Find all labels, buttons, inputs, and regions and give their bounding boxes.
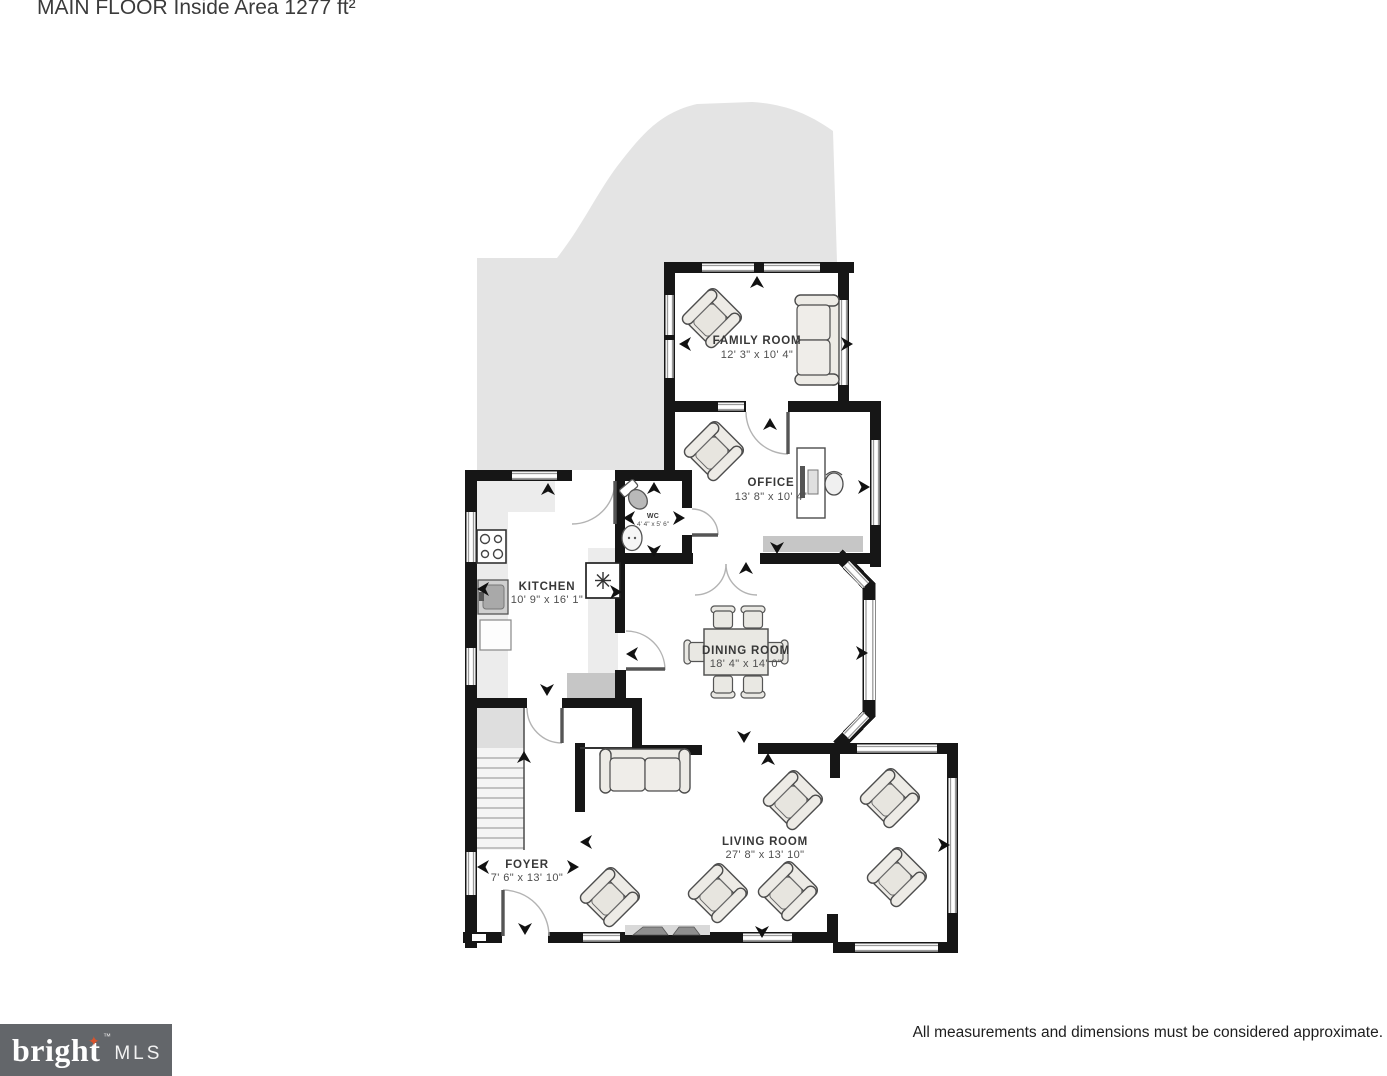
room-label-foyer: FOYER [505, 859, 549, 871]
floor-plan: FAMILY ROOM 12' 3" x 10' 4" OFFICE 13' 8… [0, 0, 1387, 1076]
camera-arrow-icon [647, 482, 661, 494]
deck-area [477, 102, 837, 470]
camera-arrow-icon [737, 731, 751, 743]
room-dim-foyer: 7' 6" x 13' 10" [491, 872, 563, 884]
living-room-armchair [756, 859, 820, 923]
office-chair [825, 473, 843, 495]
room-dim-dining-room: 18' 4" x 14' 0" [710, 658, 782, 670]
camera-arrow-icon [540, 684, 554, 696]
room-label-office: OFFICE [748, 477, 795, 489]
room-dim-wc: 4' 4" x 5' 6" [637, 521, 670, 528]
camera-arrow-icon [477, 860, 489, 874]
fireplace [625, 925, 710, 935]
camera-arrow-icon [750, 276, 764, 288]
kitchen-cabinet [480, 620, 511, 650]
room-label-wc: WC [647, 513, 659, 520]
room-dim-family-room: 12' 3" x 10' 4" [721, 349, 793, 361]
living-room-armchair [865, 845, 929, 909]
living-room-armchair [578, 865, 642, 929]
office-desk [797, 448, 843, 518]
camera-arrow-icon [761, 753, 775, 765]
camera-arrow-icon [626, 647, 638, 661]
living-room-armchair [686, 861, 750, 925]
disclaimer-text: All measurements and dimensions must be … [913, 1024, 1383, 1042]
room-label-dining-room: DINING ROOM [702, 645, 790, 657]
room-dim-living-room: 27' 8" x 13' 10" [726, 849, 805, 861]
room-label-kitchen: KITCHEN [519, 581, 576, 593]
kitchen-sink [478, 580, 508, 614]
wc-sink [622, 526, 642, 551]
living-room-armchair [761, 768, 825, 832]
living-room-sofa [600, 749, 690, 793]
room-label-family-room: FAMILY ROOM [713, 335, 802, 347]
camera-arrow-icon [567, 860, 579, 874]
living-room-armchair [858, 766, 922, 830]
room-dim-kitchen: 10' 9" x 16' 1" [511, 594, 583, 606]
room-label-living-room: LIVING ROOM [722, 836, 808, 848]
kitchen-stove [477, 530, 506, 563]
logo-trademark: ™ [103, 1032, 111, 1041]
camera-arrow-icon [763, 418, 777, 430]
logo-mls-text: MLS [114, 1043, 162, 1065]
family-room-sofa [795, 295, 839, 385]
staircase [477, 700, 524, 850]
brightmls-logo: bright ✦ ™ MLS [0, 1024, 172, 1076]
logo-star-icon: ✦ [88, 1033, 100, 1050]
room-dim-office: 13' 8" x 10' 4" [735, 491, 807, 503]
camera-arrow-icon [679, 337, 691, 351]
camera-arrow-icon [580, 835, 592, 849]
camera-arrow-icon [858, 480, 870, 494]
